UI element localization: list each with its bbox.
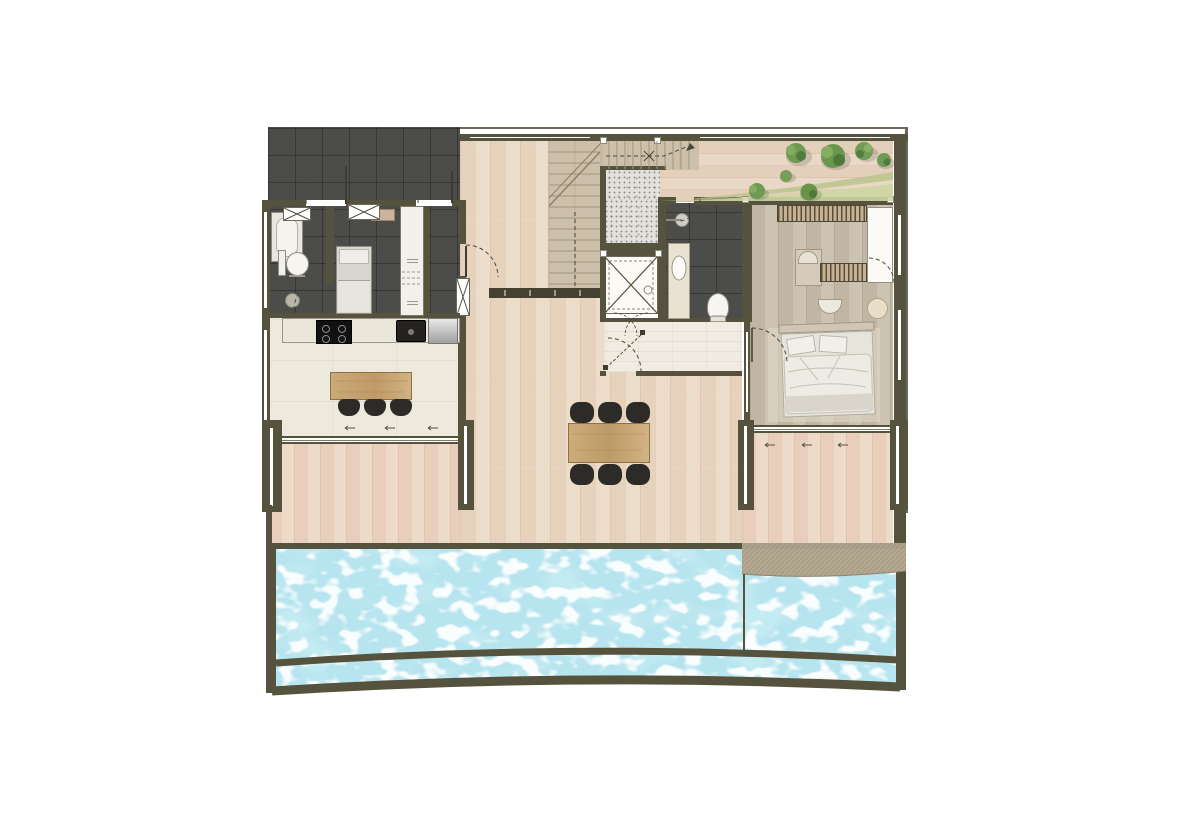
window-west-a bbox=[264, 212, 267, 308]
floor-plan-canvas bbox=[0, 0, 1200, 840]
washer-dryer-column bbox=[400, 206, 424, 316]
kitchen-island bbox=[330, 372, 412, 400]
hall-bench bbox=[489, 288, 605, 298]
wall-hall-south-b bbox=[636, 371, 742, 376]
window-west-b bbox=[264, 330, 267, 430]
wall-hall-south-a bbox=[600, 371, 606, 376]
vent-louver-1 bbox=[283, 207, 311, 221]
dresser-louver bbox=[820, 263, 867, 282]
burner bbox=[322, 335, 330, 343]
wall-closet-east bbox=[423, 206, 430, 318]
stone-niche-a bbox=[602, 170, 660, 199]
bedroom-sliding-door bbox=[752, 425, 892, 433]
micro-label bbox=[407, 262, 418, 263]
inner-hallway-floor bbox=[604, 322, 742, 372]
window-bedroom-west bbox=[746, 332, 748, 412]
wall-hall-west-a bbox=[458, 200, 466, 244]
burner bbox=[338, 325, 346, 333]
dining-chair bbox=[626, 402, 650, 423]
wall-staffbath-partition bbox=[326, 206, 334, 284]
glazing-north-2 bbox=[700, 137, 890, 138]
vent-louver-2 bbox=[348, 204, 380, 220]
glazing-north-1 bbox=[470, 137, 590, 138]
parapet-outline-top bbox=[460, 127, 908, 129]
wall-bath-north-b bbox=[694, 197, 742, 205]
pouf bbox=[867, 298, 888, 319]
swimming-pool bbox=[260, 538, 920, 698]
pier-4-glass bbox=[896, 426, 899, 504]
pier-1-glass bbox=[270, 428, 273, 506]
bedroom-deck bbox=[742, 433, 893, 543]
elevator-cab bbox=[604, 256, 658, 314]
kitchen-sink bbox=[396, 320, 426, 342]
burner bbox=[322, 325, 330, 333]
deck-edge-east bbox=[894, 510, 906, 543]
micro-label bbox=[407, 304, 418, 305]
master-bed bbox=[778, 321, 877, 419]
sink-drain bbox=[408, 329, 414, 335]
wardrobe-louver bbox=[777, 205, 867, 222]
window-east-b bbox=[898, 310, 901, 380]
staff-bed-pillow bbox=[339, 249, 369, 264]
bath-stool bbox=[285, 293, 300, 308]
toilet-tank bbox=[278, 250, 286, 276]
micro-label bbox=[407, 259, 418, 260]
stone-niche-b bbox=[604, 199, 658, 245]
desk-chair bbox=[798, 251, 818, 264]
dining-chair bbox=[626, 464, 650, 485]
bath-vanity bbox=[668, 243, 690, 319]
dining-chair bbox=[570, 464, 594, 485]
wall-stone-north bbox=[600, 166, 666, 170]
toilet-bowl bbox=[286, 252, 309, 276]
closet-nook bbox=[867, 207, 893, 283]
wall-bedroom-north bbox=[742, 197, 893, 205]
pier-2-glass bbox=[464, 426, 467, 504]
wall-core-east bbox=[658, 200, 666, 322]
wall-elevator-head bbox=[604, 243, 658, 256]
toilet-tank-2 bbox=[710, 316, 726, 322]
kitchen-deck bbox=[268, 443, 460, 543]
column-marker bbox=[742, 196, 749, 203]
kitchen-sliding-door bbox=[268, 436, 460, 444]
deck-edge-west bbox=[266, 505, 272, 543]
staircase-main-run bbox=[548, 140, 601, 292]
column-marker bbox=[655, 250, 662, 257]
shower-head bbox=[675, 213, 689, 227]
column-marker bbox=[654, 137, 661, 144]
cooktop bbox=[316, 320, 352, 344]
wall-bedroom-west-a bbox=[742, 197, 752, 322]
wall-bath-north-a bbox=[658, 197, 676, 205]
shaft-louver-panel bbox=[456, 278, 470, 316]
pier-4 bbox=[890, 420, 908, 510]
staff-bed bbox=[336, 246, 372, 314]
window-east-a bbox=[898, 215, 901, 275]
staff-bed-blanket bbox=[338, 280, 370, 312]
column-marker bbox=[600, 250, 607, 257]
dining-chair bbox=[598, 402, 622, 423]
dining-table bbox=[568, 423, 650, 463]
pier-3-glass bbox=[744, 426, 747, 504]
dining-chair bbox=[598, 464, 622, 485]
column-marker bbox=[887, 196, 894, 203]
pillow bbox=[819, 335, 848, 354]
dining-chair bbox=[570, 402, 594, 423]
column-marker bbox=[600, 137, 607, 144]
refrigerator bbox=[428, 318, 458, 344]
micro-label bbox=[407, 301, 418, 302]
burner bbox=[338, 335, 346, 343]
foot-throw bbox=[785, 393, 874, 412]
